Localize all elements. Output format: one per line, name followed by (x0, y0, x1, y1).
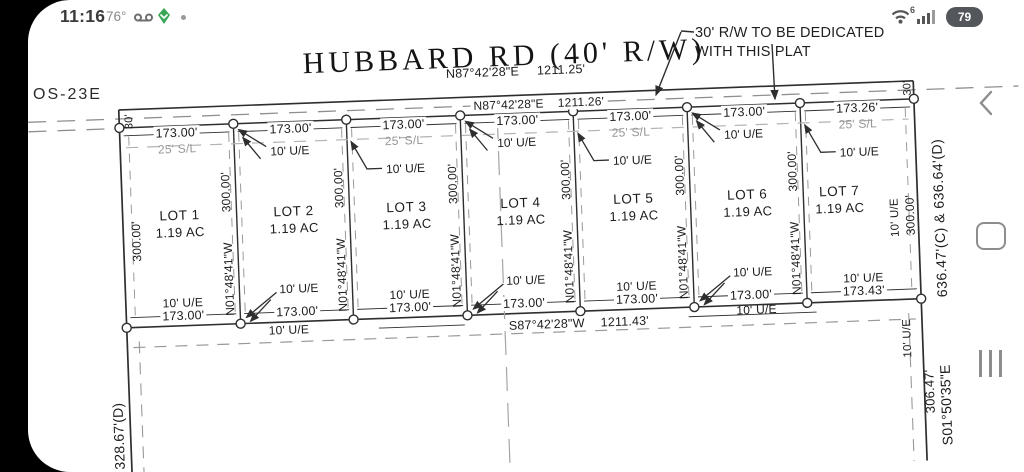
note-leader-lines (28, 0, 1024, 472)
nav-recents-icon[interactable] (979, 350, 1002, 377)
nav-back-icon[interactable] (978, 90, 994, 116)
phone-bezel: { "status_bar": {"time": "11:16", "temp"… (0, 0, 1024, 472)
nav-home-icon[interactable] (976, 222, 1006, 250)
phone-screen: 11:16 76° 6 79 OS-23E (28, 0, 1024, 472)
